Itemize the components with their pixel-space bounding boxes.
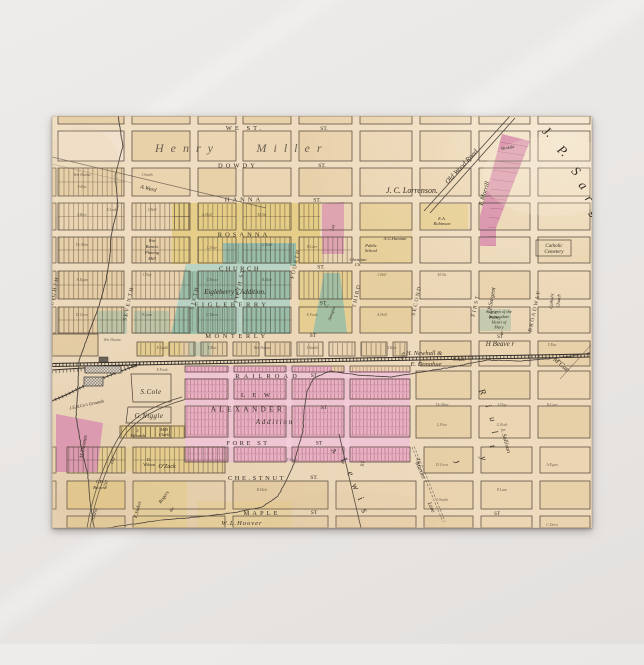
svg-text:J.Bell: J.Bell [148, 208, 157, 212]
svg-text:M.Ott: M.Ott [437, 273, 448, 277]
svg-text:Th Allen: Th Allen [436, 403, 449, 407]
svg-text:ST.: ST. [313, 198, 321, 204]
svg-text:G.Roth: G.Roth [262, 243, 273, 247]
svg-text:J. C. Lorrenson.: J. C. Lorrenson. [386, 186, 438, 195]
svg-text:Planing: Planing [144, 250, 160, 255]
svg-text:Mill: Mill [147, 256, 156, 261]
svg-text:ST: ST [494, 512, 500, 517]
svg-text:Wm Hanna: Wm Hanna [253, 346, 270, 350]
svg-text:N.Carr: N.Carr [546, 403, 558, 407]
svg-text:MONTERLY: MONTERLY [205, 333, 268, 340]
svg-text:Wilson: Wilson [143, 462, 154, 467]
svg-text:C.Dorn: C.Dorn [206, 313, 218, 317]
svg-text:A.Egan: A.Egan [545, 463, 557, 467]
svg-text:G.Niggle: G.Niggle [135, 413, 164, 420]
svg-text:HANNA: HANNA [225, 197, 263, 204]
svg-text:D.Crow: D.Crow [435, 463, 448, 467]
svg-text:L.Fine: L.Fine [436, 423, 447, 427]
svg-text:C.Dorn: C.Dorn [546, 523, 558, 527]
svg-text:E.Ladd: E.Ladd [155, 346, 167, 350]
svg-text:Ch.: Ch. [355, 262, 361, 267]
svg-text:E. Donahue: E. Donahue [409, 361, 441, 368]
svg-text:CHE.STNUT: CHE.STNUT [228, 475, 286, 482]
svg-text:H. Newhall &: H. Newhall & [405, 350, 443, 357]
svg-text:E.Ladd: E.Ladd [105, 208, 117, 212]
svg-text:ROSANNA: ROSANNA [218, 232, 270, 239]
svg-text:ST: ST [321, 405, 328, 411]
svg-text:ST: ST [311, 510, 318, 516]
svg-text:L E W: L E W [241, 392, 273, 399]
svg-text:N.&B.: N.&B. [452, 358, 466, 363]
svg-text:A.G.Hannan: A.G.Hannan [383, 236, 407, 241]
svg-text:DOWDY: DOWDY [218, 163, 258, 170]
svg-text:A.Egan: A.Egan [75, 278, 87, 282]
svg-text:H Beave r: H Beave r [485, 340, 515, 348]
svg-text:MAPLE: MAPLE [243, 510, 280, 517]
svg-text:W.L.Hoover: W.L.Hoover [221, 520, 262, 527]
svg-text:R.Hale: R.Hale [261, 278, 273, 282]
svg-text:J.Smith: J.Smith [436, 498, 447, 502]
svg-text:P.Lane: P.Lane [496, 488, 508, 492]
svg-text:G.Roth: G.Roth [497, 423, 508, 427]
svg-text:S.Rice: S.Rice [77, 213, 87, 217]
svg-text:M.Ott: M.Ott [257, 213, 268, 217]
svg-text:E.Funk: E.Funk [305, 313, 317, 317]
svg-text:ST: ST [316, 441, 323, 447]
svg-text:D.Crow: D.Crow [75, 313, 88, 317]
svg-text:T.Rea: T.Rea [548, 343, 557, 347]
svg-text:EIGLEBERRY: EIGLEBERRY [194, 302, 269, 309]
svg-text:J.Day: J.Day [143, 273, 152, 277]
svg-text:ST.: ST. [317, 265, 325, 271]
svg-text:Wm Hanna: Wm Hanna [73, 173, 90, 177]
svg-text:FORE ST: FORE ST [226, 440, 269, 447]
svg-text:E.Funk: E.Funk [155, 368, 167, 372]
svg-text:T.Shaw: T.Shaw [286, 458, 297, 462]
svg-text:Mary: Mary [493, 325, 504, 330]
svg-text:P.Lane: P.Lane [141, 313, 153, 317]
svg-text:Catholic: Catholic [545, 244, 563, 249]
svg-text:A.Holl: A.Holl [201, 213, 212, 217]
svg-text:Edwards: Edwards [130, 433, 146, 438]
svg-text:J.Smith: J.Smith [141, 173, 152, 177]
svg-text:ST.: ST. [318, 163, 326, 169]
svg-text:Th Allen: Th Allen [76, 243, 89, 247]
svg-text:ST: ST [311, 373, 318, 379]
svg-text:S.Rice: S.Rice [387, 346, 397, 350]
svg-text:N.Carr: N.Carr [306, 245, 318, 249]
svg-text:H e n r y: H e n r y [154, 141, 215, 155]
svg-text:Rancio: Rancio [145, 244, 159, 249]
svg-text:T.Shaw: T.Shaw [206, 278, 217, 282]
svg-text:J.Day: J.Day [498, 403, 507, 407]
svg-text:WE ST.: WE ST. [226, 125, 264, 132]
svg-text:Cemetery: Cemetery [544, 250, 564, 255]
svg-text:J.Smith: J.Smith [306, 346, 317, 350]
svg-text:RAILROAD: RAILROAD [235, 373, 301, 380]
svg-text:Wm Hanna: Wm Hanna [103, 338, 120, 342]
svg-text:M i l l e r: M i l l e r [256, 141, 324, 155]
svg-text:ST: ST [310, 333, 317, 339]
svg-text:T.Rea: T.Rea [78, 185, 87, 189]
svg-text:ST.: ST. [320, 126, 328, 132]
svg-text:ST.: ST. [310, 475, 318, 481]
svg-text:Wm: Wm [149, 238, 157, 243]
svg-text:L.Fine: L.Fine [206, 246, 217, 250]
svg-text:T.Rea: T.Rea [208, 346, 217, 350]
svg-text:A.Holl: A.Holl [376, 313, 387, 317]
svg-text:O'Zack: O'Zack [158, 464, 176, 470]
svg-text:School: School [365, 248, 378, 253]
svg-text:Robinson: Robinson [432, 221, 451, 226]
svg-text:ALEXANDER: ALEXANDER [211, 406, 285, 414]
svg-text:S.Cole: S.Cole [141, 389, 162, 396]
svg-text:J.Bell: J.Bell [378, 273, 387, 277]
svg-text:A d d i t i o n: A d d i t i o n [255, 418, 293, 426]
svg-text:Clark: Clark [159, 432, 170, 437]
svg-text:R.Hale: R.Hale [256, 488, 268, 492]
